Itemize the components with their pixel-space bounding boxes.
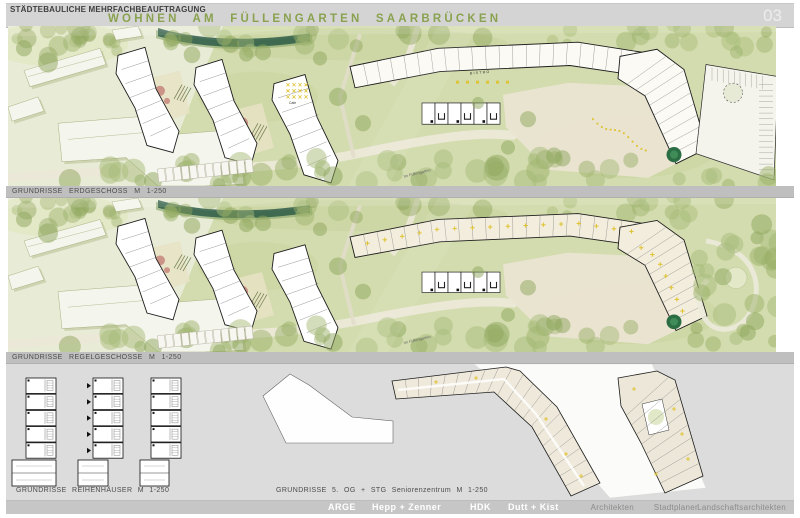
firm-hdk: HDK (470, 501, 491, 514)
page-number: 03 (763, 6, 782, 26)
title-bar: STÄDTEBAULICHE MEHRFACHBEAUFTRAGUNG WOHN… (6, 3, 794, 28)
label-reihenhaeuser: GRUNDRISSE REIHENHÄUSER M 1-250 (16, 487, 169, 494)
firm-dutt-kist: Dutt + Kist (508, 501, 559, 514)
role-stadtplaner: Stadtplaner (654, 501, 698, 514)
site-plan-erdgeschoss-drawing: BISTROCafeIm Füllengarten (8, 26, 776, 186)
terraced-house-row (422, 272, 500, 292)
scale-band-erdgeschoss: GRUNDRISSE ERDGESCHOSS M 1-250 (6, 186, 794, 198)
role-architekten: Architekten (591, 501, 634, 514)
roof-plan-shape (263, 374, 393, 443)
site-plan-regelgeschoss-drawing: Im Füllengarten (8, 198, 776, 352)
cafe-label: Cafe (289, 101, 296, 105)
footer-bar: ARGE Hepp + Zenner HDK Dutt + Kist Archi… (6, 500, 794, 514)
role-landschaftsarchitekten: Landschaftsarchitekten (697, 501, 786, 514)
label-seniorenzentrum: GRUNDRISSE 5. OG + STG Seniorenzentrum M… (276, 487, 488, 494)
terraced-house-row (422, 103, 500, 124)
site-plan-erdgeschoss: BISTROCafeIm Füllengarten (8, 26, 776, 186)
arge-label: ARGE (328, 501, 356, 514)
board-title: WOHNEN AM FÜLLENGARTEN SAARBRÜCKEN (108, 13, 501, 25)
scale-label-erdgeschoss: GRUNDRISSE ERDGESCHOSS M 1-250 (12, 188, 167, 195)
rowhouse-plans (12, 378, 181, 486)
firm-hepp-zenner: Hepp + Zenner (372, 501, 441, 514)
scale-label-regelgeschoss: GRUNDRISSE REGELGESCHOSSE M 1-250 (12, 354, 182, 361)
presentation-board: STÄDTEBAULICHE MEHRFACHBEAUFTRAGUNG WOHN… (0, 0, 800, 518)
detail-plans-drawing (6, 364, 794, 500)
bottom-panel (6, 364, 794, 500)
scale-band-regelgeschoss: GRUNDRISSE REGELGESCHOSSE M 1-250 (6, 352, 794, 364)
site-plan-regelgeschoss: Im Füllengarten (8, 198, 776, 352)
